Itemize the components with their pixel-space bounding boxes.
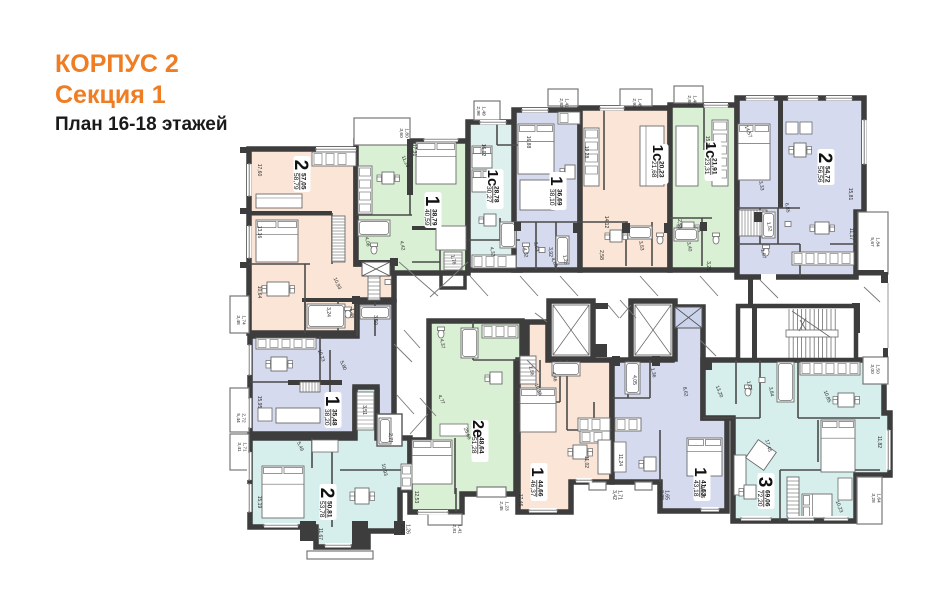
svg-text:2,58: 2,58 — [676, 219, 682, 229]
svg-text:2,92: 2,92 — [631, 98, 637, 108]
svg-text:51,28: 51,28 — [470, 437, 477, 454]
svg-text:1,64: 1,64 — [876, 493, 882, 503]
svg-text:56,56: 56,56 — [816, 166, 823, 183]
svg-text:21,91: 21,91 — [711, 158, 718, 175]
svg-text:46,37: 46,37 — [529, 480, 536, 497]
svg-text:38,10: 38,10 — [548, 189, 555, 206]
svg-text:2,80: 2,80 — [686, 95, 692, 105]
svg-text:53,78: 53,78 — [318, 501, 325, 518]
svg-text:1: 1 — [421, 196, 442, 207]
svg-text:3,51: 3,51 — [361, 405, 367, 415]
svg-text:1,41: 1,41 — [564, 98, 570, 108]
svg-text:2,45: 2,45 — [498, 501, 504, 511]
svg-text:2,98: 2,98 — [475, 106, 481, 116]
svg-text:3,92: 3,92 — [547, 247, 553, 257]
svg-text:1с: 1с — [649, 145, 666, 162]
svg-text:1,48: 1,48 — [348, 308, 354, 318]
svg-text:План 16-18 этажей: План 16-18 этажей — [55, 114, 228, 135]
svg-text:54,72: 54,72 — [824, 166, 831, 183]
svg-text:1,65: 1,65 — [664, 490, 670, 500]
svg-text:3,41: 3,41 — [236, 442, 242, 452]
svg-text:1,45: 1,45 — [637, 98, 643, 108]
svg-text:44,66: 44,66 — [537, 480, 544, 497]
svg-text:72,20: 72,20 — [756, 490, 763, 507]
svg-text:1с: 1с — [484, 170, 501, 187]
svg-text:13,16: 13,16 — [256, 226, 262, 239]
svg-text:28,78: 28,78 — [493, 186, 500, 203]
svg-text:1,80: 1,80 — [404, 128, 410, 138]
svg-text:10,64: 10,64 — [256, 286, 262, 299]
svg-text:3,60: 3,60 — [398, 128, 404, 138]
svg-text:3,21: 3,21 — [705, 261, 711, 271]
svg-text:1,71: 1,71 — [617, 490, 623, 500]
svg-text:2,71: 2,71 — [387, 433, 393, 443]
svg-text:10,28: 10,28 — [583, 146, 589, 159]
svg-text:3,50: 3,50 — [372, 315, 378, 325]
svg-text:4,05: 4,05 — [631, 375, 637, 385]
svg-text:2,72: 2,72 — [241, 413, 247, 423]
svg-text:2: 2 — [316, 488, 337, 499]
svg-text:КОРПУС 2: КОРПУС 2 — [55, 50, 179, 78]
svg-text:38,20: 38,20 — [323, 409, 330, 426]
svg-text:17,31: 17,31 — [411, 144, 417, 157]
svg-text:16,88: 16,88 — [525, 136, 531, 149]
svg-text:15,81: 15,81 — [847, 188, 853, 201]
svg-text:57,05: 57,05 — [300, 173, 307, 190]
svg-text:2: 2 — [290, 160, 311, 171]
svg-text:11,17: 11,17 — [848, 228, 854, 240]
svg-text:3,42: 3,42 — [611, 490, 617, 500]
svg-text:11,24: 11,24 — [617, 454, 623, 466]
svg-text:21,68: 21,68 — [650, 161, 657, 178]
svg-text:40,59: 40,59 — [423, 209, 430, 226]
svg-text:1,71: 1,71 — [242, 442, 248, 452]
svg-text:3,48: 3,48 — [235, 315, 241, 325]
svg-text:50,81: 50,81 — [326, 501, 333, 518]
svg-text:48,64: 48,64 — [478, 437, 485, 454]
svg-text:58,79: 58,79 — [292, 173, 299, 190]
svg-text:Секция 1: Секция 1 — [55, 81, 166, 109]
svg-text:14,12: 14,12 — [603, 216, 609, 229]
svg-text:16,02: 16,02 — [480, 144, 486, 157]
svg-text:1: 1 — [321, 396, 342, 407]
svg-text:3,28: 3,28 — [870, 493, 876, 503]
svg-text:17,46: 17,46 — [517, 494, 523, 507]
svg-text:11,82: 11,82 — [876, 436, 882, 448]
svg-text:1: 1 — [547, 176, 566, 185]
svg-text:2,58: 2,58 — [598, 250, 604, 260]
svg-text:1,26: 1,26 — [405, 524, 411, 534]
svg-text:30,27: 30,27 — [485, 186, 492, 203]
svg-text:15,19: 15,19 — [256, 496, 262, 509]
svg-text:1,41: 1,41 — [457, 524, 463, 534]
svg-text:15,30: 15,30 — [704, 136, 710, 149]
svg-text:11,02: 11,02 — [583, 456, 589, 468]
svg-text:38,79: 38,79 — [431, 209, 438, 226]
svg-text:1: 1 — [691, 467, 710, 476]
svg-text:12,53: 12,53 — [413, 491, 419, 504]
svg-text:1,49: 1,49 — [481, 106, 487, 116]
svg-text:11,67: 11,67 — [317, 528, 323, 540]
svg-text:1,40: 1,40 — [692, 95, 698, 105]
svg-text:17,60: 17,60 — [256, 164, 262, 177]
svg-text:3,00: 3,00 — [869, 364, 875, 374]
svg-text:3: 3 — [754, 477, 775, 488]
svg-text:16,26: 16,26 — [699, 486, 705, 499]
svg-text:2,51: 2,51 — [399, 524, 405, 534]
svg-text:35,48: 35,48 — [331, 409, 338, 426]
svg-text:3,29: 3,29 — [658, 490, 664, 500]
svg-text:1,74: 1,74 — [241, 315, 247, 325]
svg-text:2,82: 2,82 — [558, 98, 564, 108]
svg-text:2: 2 — [814, 153, 835, 164]
svg-text:1,23: 1,23 — [504, 501, 510, 511]
svg-text:69,06: 69,06 — [764, 490, 771, 507]
svg-text:15,95: 15,95 — [256, 396, 262, 409]
svg-text:3,24: 3,24 — [325, 307, 331, 317]
svg-text:43,18: 43,18 — [692, 480, 699, 497]
svg-text:36,69: 36,69 — [556, 189, 563, 206]
svg-text:20,23: 20,23 — [658, 161, 665, 178]
svg-text:1,50: 1,50 — [875, 364, 881, 374]
svg-text:1: 1 — [528, 467, 547, 476]
svg-text:5,44: 5,44 — [235, 413, 241, 423]
svg-text:5,67: 5,67 — [869, 237, 875, 247]
svg-text:2,81: 2,81 — [451, 524, 457, 534]
svg-text:23,31: 23,31 — [703, 158, 710, 175]
svg-text:1,84: 1,84 — [875, 237, 881, 247]
